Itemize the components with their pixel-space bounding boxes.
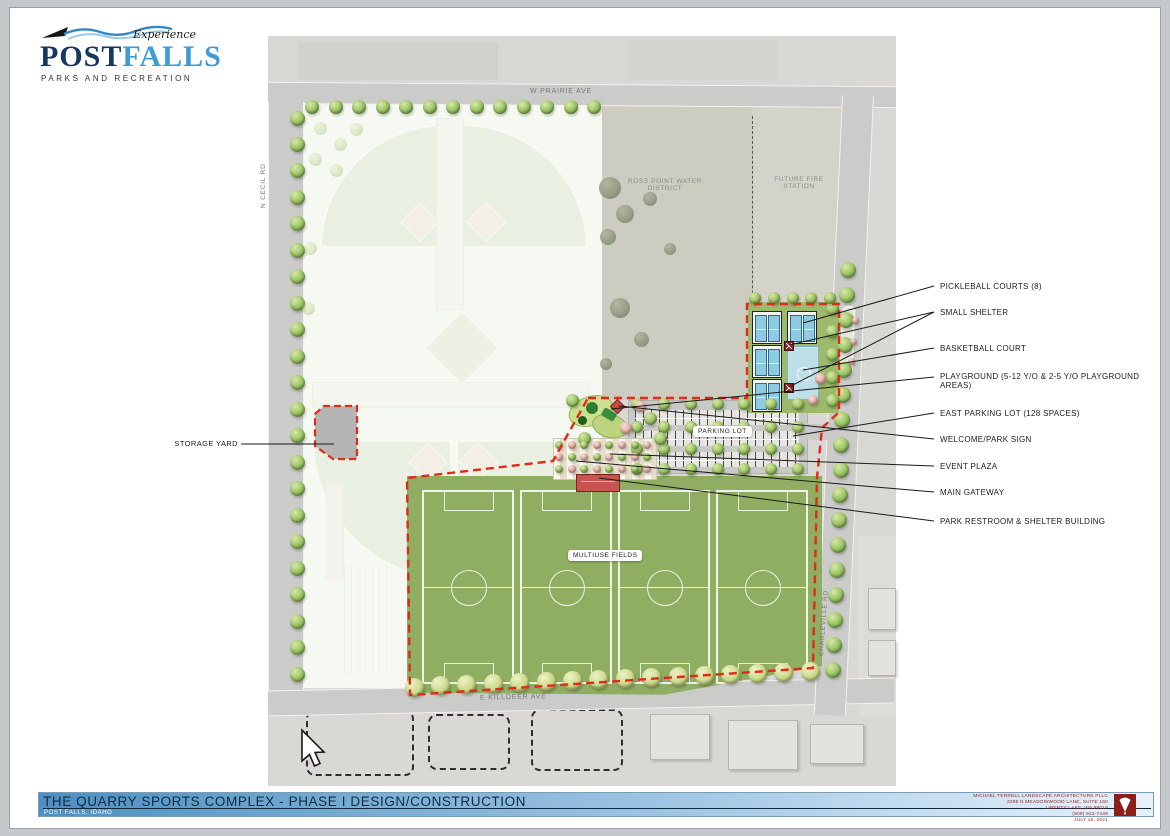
small-shelter (784, 341, 794, 351)
house-roof (728, 720, 798, 770)
callout-pickleball: PICKLEBALL COURTS (8) (940, 282, 1152, 291)
road-cecil-rd (268, 102, 304, 702)
road-median (839, 306, 855, 377)
logo-falls-text: FALLS (122, 40, 221, 73)
pickleball-panel (787, 311, 817, 344)
soccer-field (716, 490, 808, 684)
pickleball-panel (752, 311, 782, 344)
label-parking-lot: PARKING LOT (693, 426, 752, 437)
sheet-subtitle: POST FALLS, IDAHO (44, 810, 112, 816)
label-prairie-ave: W PRAIRIE AVE (530, 88, 592, 95)
callout-restroom: PARK RESTROOM & SHELTER BUILDING (940, 517, 1152, 526)
callout-welcome-sign: WELCOME/PARK SIGN (940, 435, 1152, 444)
playground-area (566, 390, 652, 442)
logo-tagline: PARKS AND RECREATION (41, 74, 192, 83)
future-lot-outline (428, 714, 510, 770)
pickleball-courts-area (748, 302, 839, 413)
logo-post-text: POST (40, 40, 122, 73)
soccer-field (422, 490, 514, 684)
label-storage-yard: STORAGE YARD (110, 439, 238, 448)
ross-point-water-parcel (602, 104, 752, 400)
house-roof (868, 640, 896, 676)
callout-small-shelter: SMALL SHELTER (940, 308, 1152, 317)
label-fire-station: FUTURE FIRE STATION (758, 176, 840, 190)
road-prairie-ave (268, 82, 896, 108)
soccer-field (520, 490, 612, 684)
soccer-field (618, 490, 710, 684)
post-falls-logo: Experience POSTFALLS PARKS AND RECREATIO… (38, 20, 198, 84)
small-shelter (784, 383, 794, 393)
sheet-title: THE QUARRY SPORTS COMPLEX - PHASE I DESI… (43, 794, 526, 809)
future-lot-outline (306, 710, 414, 776)
firm-leaf-logo-icon (1114, 794, 1136, 816)
future-lot-outline (531, 709, 623, 771)
callout-basketball: BASKETBALL COURT (940, 344, 1152, 353)
firm-info-block: MICHAEL TERRELL LANDSCAPE ARCHITECTURE P… (858, 794, 1108, 824)
label-cecil-rd: N CECIL RD (260, 163, 267, 208)
multiuse-fields-area (407, 476, 822, 697)
restroom-shelter-building (576, 474, 620, 492)
callout-playground: PLAYGROUND (5-12 Y/O & 2-5 Y/O PLAYGROUN… (940, 372, 1140, 390)
house-roof (810, 724, 864, 764)
label-multiuse-fields: MULTIUSE FIELDS (568, 550, 642, 561)
label-ross-point: ROSS POINT WATER DISTRICT (622, 178, 708, 192)
pickleball-panel (752, 345, 782, 378)
parking-entry-drive (804, 423, 839, 440)
callout-event-plaza: EVENT PLAZA (940, 462, 1152, 471)
house-roof (650, 714, 710, 760)
pickleball-panel (752, 379, 782, 412)
house-roof (868, 588, 896, 630)
plan-sheet-viewer: Experience POSTFALLS PARKS AND RECREATIO… (0, 0, 1170, 836)
firm-line: JULY 15, 2021 (858, 818, 1108, 824)
callout-main-gateway: MAIN GATEWAY (940, 488, 1152, 497)
drawing-sheet: Experience POSTFALLS PARKS AND RECREATIO… (9, 7, 1161, 829)
logo-wordmark: POSTFALLS (40, 40, 222, 74)
label-killdeer-ave: E KILLDEER AVE (480, 693, 547, 701)
callout-east-parking: EAST PARKING LOT (128 SPACES) (940, 409, 1152, 418)
